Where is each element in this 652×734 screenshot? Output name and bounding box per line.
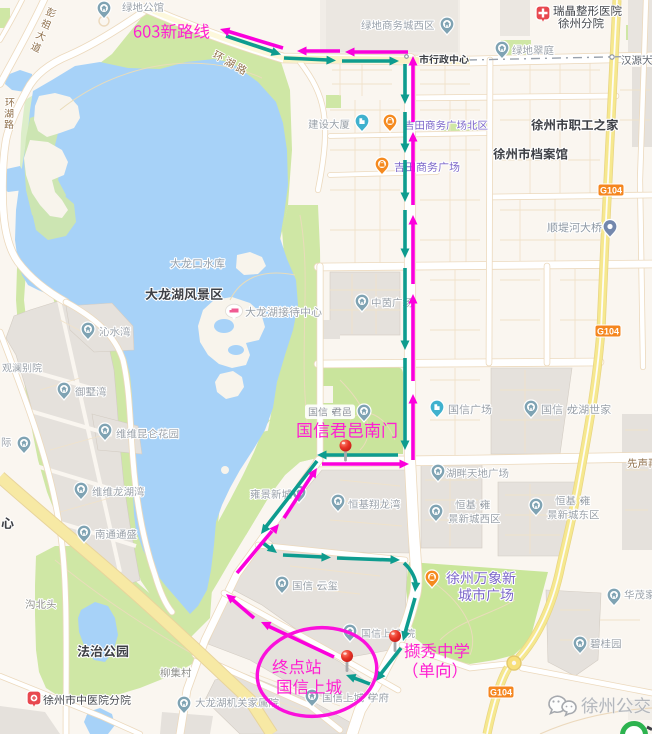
svg-text:G104: G104: [490, 688, 512, 698]
svg-text:G104: G104: [597, 327, 619, 337]
svg-text:G104: G104: [600, 186, 622, 196]
